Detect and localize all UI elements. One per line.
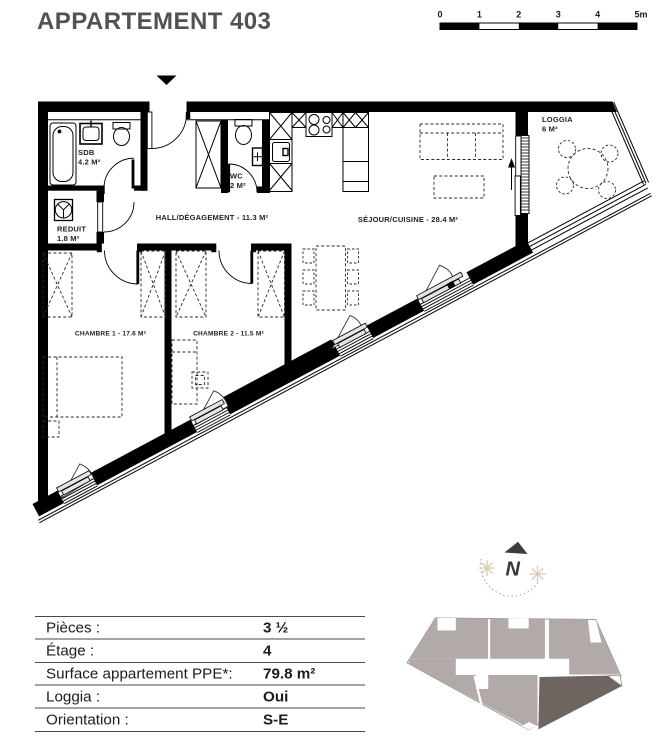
- svg-text:6 M²: 6 M²: [542, 125, 558, 134]
- svg-text:3 ½: 3 ½: [263, 620, 288, 637]
- svg-text:Loggia :: Loggia :: [46, 689, 100, 706]
- svg-text:5m: 5m: [634, 10, 647, 20]
- svg-text:SÉJOUR/CUISINE - 28.4 M²: SÉJOUR/CUISINE - 28.4 M²: [358, 215, 459, 224]
- svg-text:Pièces :: Pièces :: [46, 620, 100, 637]
- svg-text:WC: WC: [230, 172, 243, 181]
- svg-text:1: 1: [477, 10, 482, 20]
- svg-text:LOGGIA: LOGGIA: [542, 115, 573, 124]
- svg-text:0: 0: [437, 10, 442, 20]
- svg-text:CHAMBRE 1 - 17.6 M²: CHAMBRE 1 - 17.6 M²: [75, 331, 147, 338]
- svg-text:Étage :: Étage :: [46, 643, 94, 660]
- svg-text:Orientation :: Orientation :: [46, 712, 129, 729]
- svg-text:HALL/DÉGAGEMENT - 11.3 M²: HALL/DÉGAGEMENT - 11.3 M²: [156, 213, 269, 222]
- svg-text:REDUIT: REDUIT: [57, 225, 86, 234]
- svg-text:79.8 m²: 79.8 m²: [263, 666, 315, 683]
- svg-text:3: 3: [556, 10, 561, 20]
- svg-text:4: 4: [263, 643, 272, 660]
- svg-text:1.8 M²: 1.8 M²: [57, 234, 80, 243]
- svg-text:SDB: SDB: [78, 148, 95, 157]
- svg-text:Oui: Oui: [263, 689, 288, 706]
- svg-text:4: 4: [595, 10, 600, 20]
- svg-text:4.2 M²: 4.2 M²: [78, 158, 101, 167]
- svg-text:2 M²: 2 M²: [230, 181, 246, 190]
- svg-text:2: 2: [516, 10, 521, 20]
- svg-text:Surface appartement PPE*:: Surface appartement PPE*:: [46, 666, 233, 683]
- svg-text:S-E: S-E: [263, 712, 288, 729]
- svg-text:N: N: [506, 559, 521, 581]
- svg-text:CHAMBRE 2 - 11.5 M²: CHAMBRE 2 - 11.5 M²: [193, 331, 264, 338]
- svg-text:APPARTEMENT 403: APPARTEMENT 403: [37, 8, 271, 35]
